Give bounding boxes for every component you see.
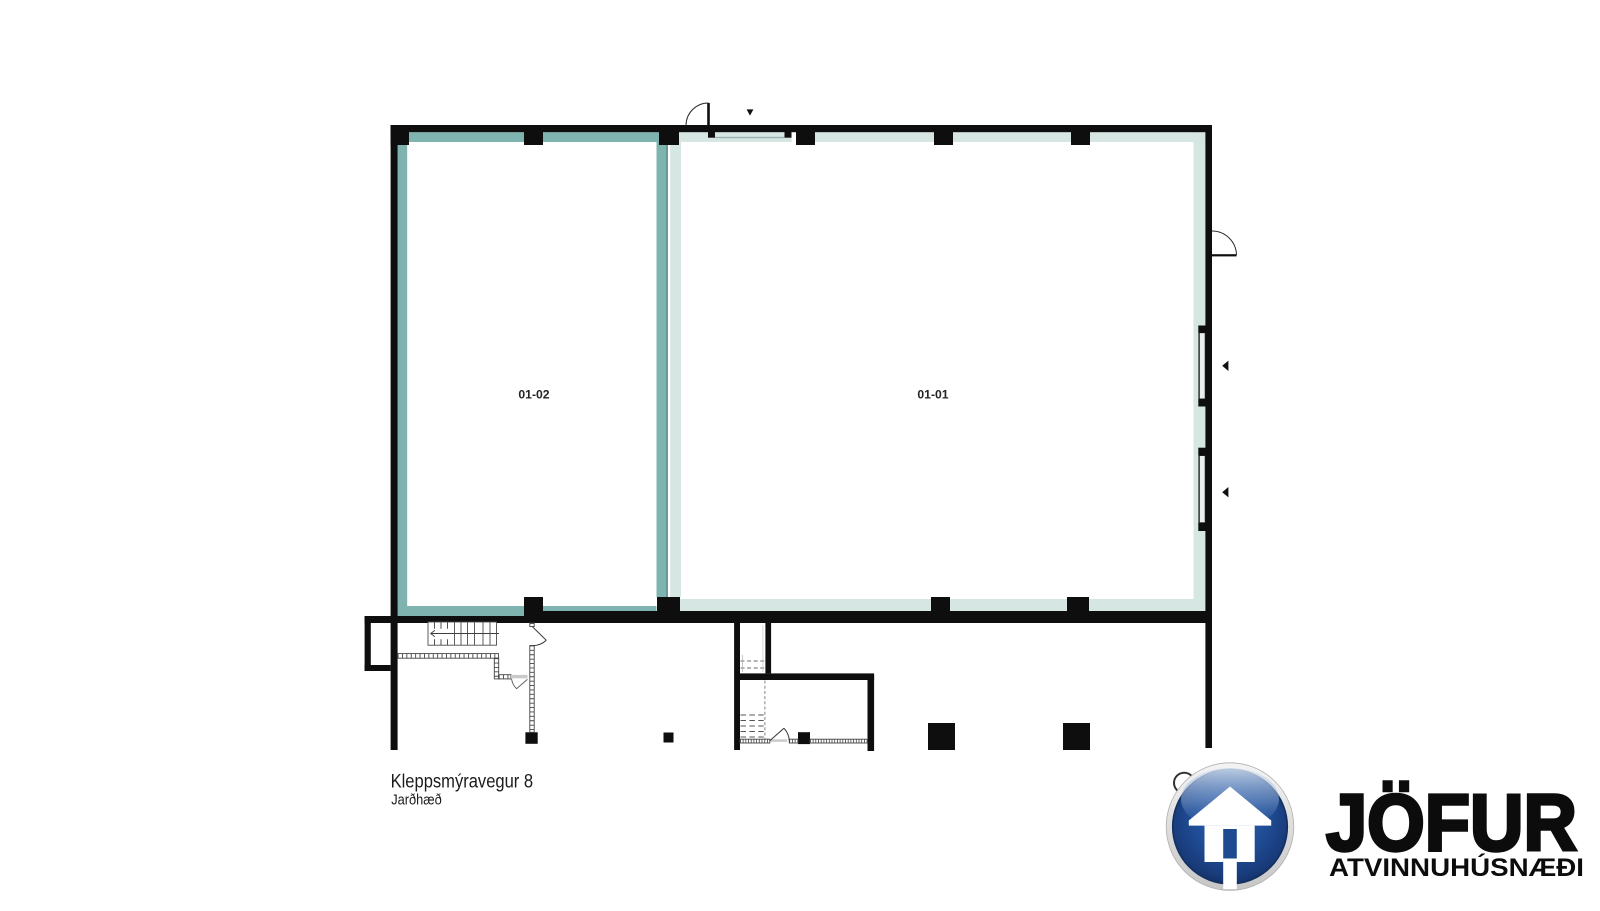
svg-text:01-02: 01-02 — [518, 387, 549, 401]
svg-text:Kleppsmýravegur 8: Kleppsmýravegur 8 — [391, 770, 534, 792]
svg-text:Jarðhæð: Jarðhæð — [391, 791, 442, 808]
svg-text:ATVINNUHÚSNÆÐI: ATVINNUHÚSNÆÐI — [1329, 852, 1584, 882]
svg-text:01-01: 01-01 — [917, 387, 948, 401]
